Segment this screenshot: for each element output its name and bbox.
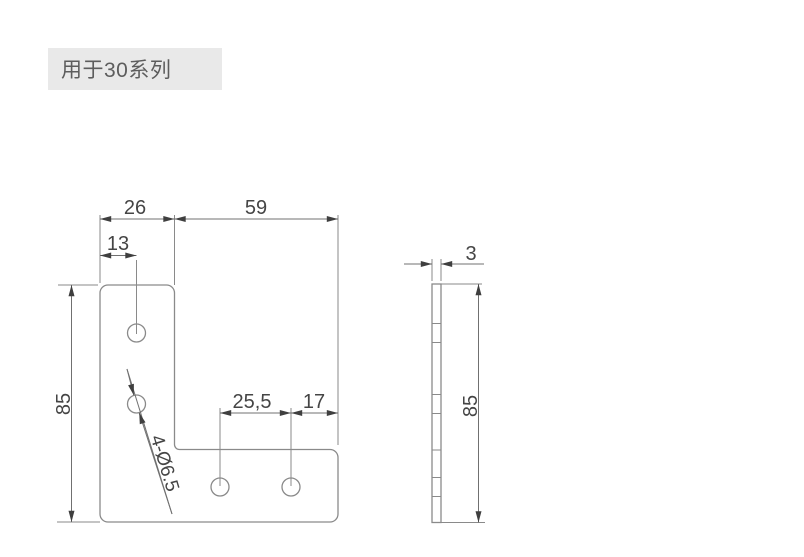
- dimension-hole-offset: 13: [100, 233, 137, 334]
- dimension-height-side: 85: [441, 284, 485, 523]
- page: 用于30系列 26: [0, 0, 804, 557]
- plate-projection-lines: [432, 324, 441, 497]
- dim-label-13: 13: [107, 233, 129, 255]
- dimension-arm-width: 26: [100, 197, 175, 219]
- dim-label-85-front: 85: [53, 393, 75, 415]
- hole-callout-label: 4-Ø6.5: [146, 433, 183, 495]
- dim-label-17: 17: [303, 391, 325, 413]
- plate-edge-outline: [432, 284, 441, 523]
- hole-middle: [128, 395, 146, 413]
- dimension-remaining-width: 59: [175, 197, 339, 219]
- front-view: 26 59 13 85: [53, 197, 338, 522]
- dimension-height-front: 85: [53, 285, 100, 522]
- dimension-bottom-holes: 25,5 17: [220, 391, 338, 486]
- dim-label-25-5: 25,5: [233, 391, 272, 413]
- technical-drawing: 26 59 13 85: [0, 0, 804, 557]
- dim-label-3: 3: [465, 243, 476, 265]
- dimension-thickness: 3: [404, 243, 484, 281]
- dim-label-85-side: 85: [460, 395, 482, 417]
- dim-label-26: 26: [124, 197, 146, 219]
- dim-label-59: 59: [245, 197, 267, 219]
- side-view: 3 85: [404, 243, 485, 523]
